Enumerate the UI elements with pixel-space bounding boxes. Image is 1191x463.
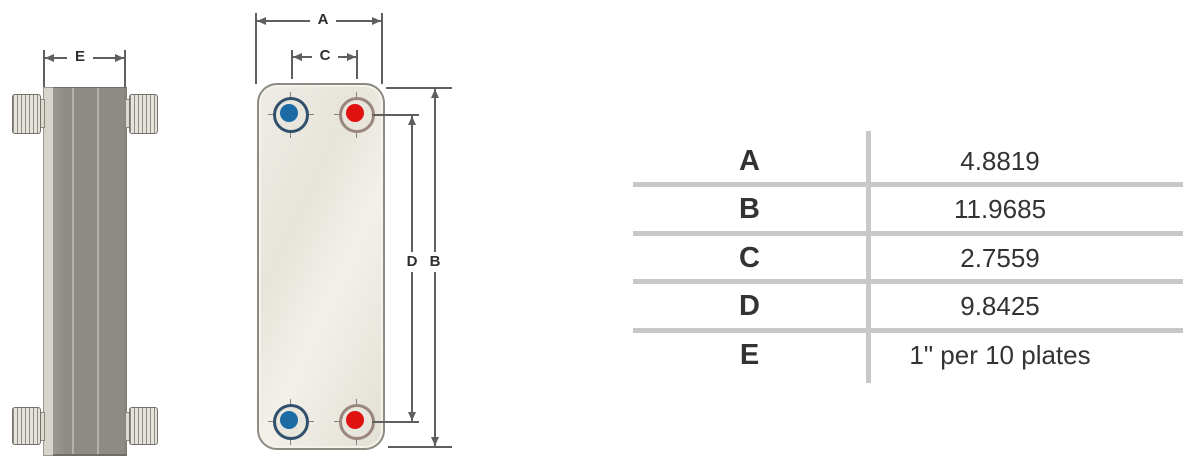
port-top-right-red: [339, 97, 375, 133]
table-row-label: A: [633, 137, 866, 185]
table-row-label: C: [633, 234, 866, 282]
dim-c-label: C: [312, 46, 338, 66]
dim-e-arrow-right: [115, 54, 124, 62]
dim-e-extension-right: [124, 50, 126, 88]
table-row: C 2.7559: [633, 234, 1183, 282]
table-row-label: D: [633, 282, 866, 330]
table-row-value: 11.9685: [870, 185, 1130, 233]
dim-b-arrow-down: [431, 437, 439, 446]
dim-b-line-upper: [434, 89, 436, 252]
dim-a-extension-right: [381, 13, 383, 84]
dim-b-extension-top: [386, 87, 452, 89]
dim-a-arrow-left: [257, 17, 266, 25]
plate-stack: [53, 87, 127, 456]
table-row-value: 2.7559: [870, 234, 1130, 282]
dim-c-extension-right: [356, 50, 358, 79]
dim-d-label: D: [402, 252, 422, 272]
table-row-label: E: [633, 331, 866, 379]
dim-b-arrow-up: [431, 89, 439, 98]
dim-b-label: B: [425, 252, 445, 272]
dim-b-extension-bottom: [388, 446, 452, 448]
dimensions-table: A 4.8819 B 11.9685 C 2.7559 D 9.8425 E 1…: [633, 131, 1183, 383]
front-plate: [257, 83, 385, 450]
dim-e-label: E: [67, 47, 93, 67]
threaded-fitting-top-right: [129, 94, 158, 134]
plate-seam: [97, 88, 99, 454]
plate-heat-exchanger-dimension-drawing: E A C: [0, 0, 1191, 463]
table-row: D 9.8425: [633, 282, 1183, 330]
threaded-fitting-bottom-left: [12, 407, 41, 445]
threaded-fitting-top-left: [12, 94, 41, 134]
dim-d-extension-bottom: [372, 421, 419, 423]
port-bottom-right-red: [339, 404, 375, 440]
dim-c-arrow-right: [347, 53, 356, 61]
port-top-left-blue: [273, 97, 309, 133]
table-row: A 4.8819: [633, 137, 1183, 185]
dim-c-arrow-left: [293, 53, 302, 61]
dim-d-arrow-down: [408, 412, 416, 421]
threaded-fitting-bottom-right: [129, 407, 158, 445]
table-row: E 1" per 10 plates: [633, 331, 1183, 379]
table-row: B 11.9685: [633, 185, 1183, 233]
dim-d-line-upper: [411, 116, 413, 252]
dim-d-line-lower: [411, 272, 413, 421]
dim-b-line-lower: [434, 272, 436, 446]
dim-e-arrow-left: [45, 54, 54, 62]
dim-d-arrow-up: [408, 116, 416, 125]
dim-a-label: A: [310, 10, 336, 30]
table-row-value: 1" per 10 plates: [870, 331, 1130, 379]
table-row-label: B: [633, 185, 866, 233]
dim-a-arrow-right: [372, 17, 381, 25]
table-row-value: 4.8819: [870, 137, 1130, 185]
table-row-value: 9.8425: [870, 282, 1130, 330]
port-bottom-left-blue: [273, 404, 309, 440]
plate-seam: [72, 88, 74, 454]
